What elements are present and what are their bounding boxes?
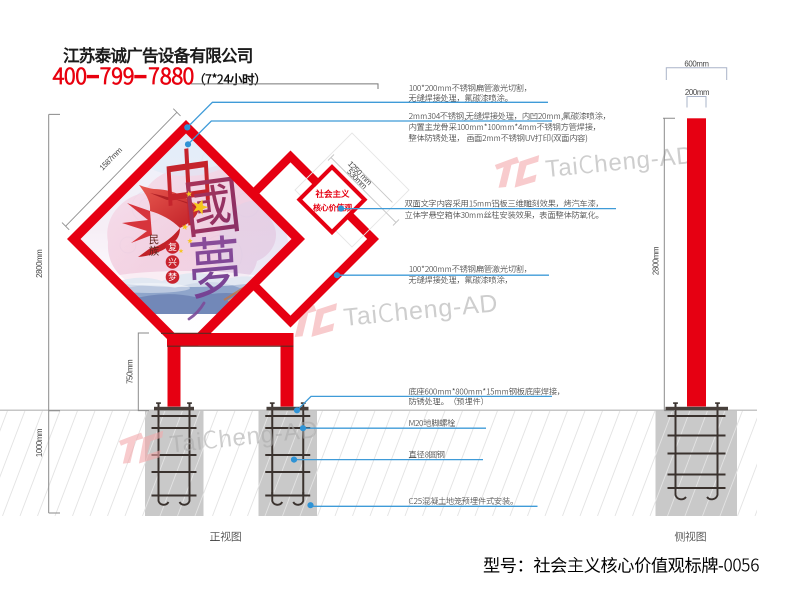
svg-text:型号：社会主义核心价值观标牌-0056: 型号：社会主义核心价值观标牌-0056: [483, 552, 759, 577]
svg-text:7880: 7880: [148, 60, 194, 91]
svg-text:族: 族: [149, 244, 160, 259]
svg-text:防锈处理。（预埋件）: 防锈处理。（预埋件）: [409, 395, 489, 407]
svg-text:C25混凝土地笼预埋件式安装。: C25混凝土地笼预埋件式安装。: [409, 495, 518, 507]
svg-text:600mm: 600mm: [684, 60, 708, 69]
svg-text:整体防锈处理， 画面2mm不锈钢UV打印(双面内容): 整体防锈处理， 画面2mm不锈钢UV打印(双面内容): [409, 132, 588, 144]
svg-text:799: 799: [100, 60, 134, 91]
svg-text:梦: 梦: [168, 270, 177, 283]
svg-text:立体字悬空箱体30mm丝柱安装效果，表面整体防氧化。: 立体字悬空箱体30mm丝柱安装效果，表面整体防氧化。: [405, 209, 604, 221]
svg-text:无缝焊接处理，氟碳漆喷涂，: 无缝焊接处理，氟碳漆喷涂，: [409, 274, 513, 286]
svg-text:复: 复: [168, 240, 177, 253]
svg-text:直径8圆钢: 直径8圆钢: [409, 448, 445, 460]
svg-text:无缝焊接处理，氟碳漆喷涂。: 无缝焊接处理，氟碳漆喷涂。: [409, 92, 513, 104]
svg-text:2800mm: 2800mm: [35, 250, 44, 278]
svg-text:正视图: 正视图: [210, 529, 242, 545]
svg-text:400: 400: [53, 60, 87, 91]
svg-text:750mm: 750mm: [126, 360, 135, 384]
svg-text:（7*24小时）: （7*24小时）: [193, 69, 266, 88]
svg-text:双面文字内容采用15mm铝板三维雕刻效果，烤汽车漆，: 双面文字内容采用15mm铝板三维雕刻效果，烤汽车漆，: [405, 197, 604, 209]
svg-text:侧视图: 侧视图: [674, 529, 706, 545]
svg-text:200mm: 200mm: [685, 88, 709, 97]
svg-text:兴: 兴: [168, 255, 177, 268]
svg-text:1000mm: 1000mm: [35, 429, 44, 457]
svg-text:2800mm: 2800mm: [651, 247, 660, 275]
svg-text:社会主义: 社会主义: [314, 188, 350, 200]
svg-text:M20地脚螺栓: M20地脚螺栓: [409, 417, 457, 429]
